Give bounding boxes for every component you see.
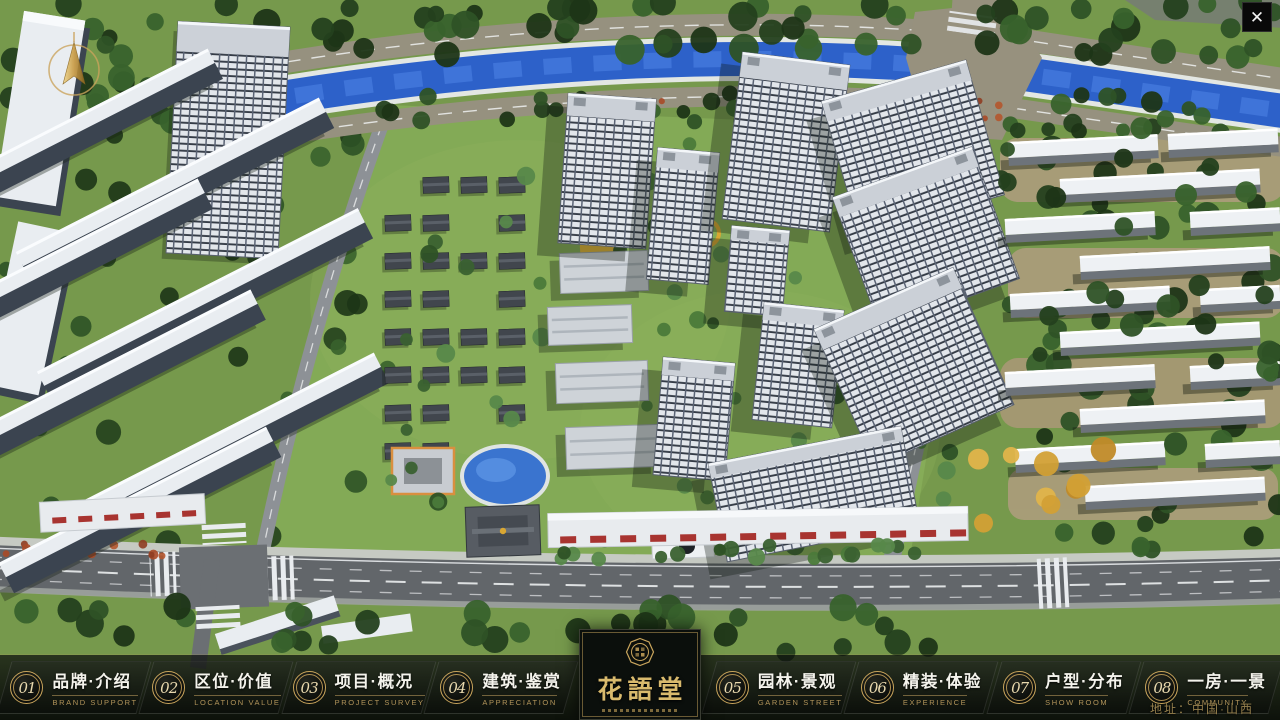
nav-item-brand-intro[interactable]: 01 品牌·介绍BRAND SUPPORT xyxy=(3,659,145,716)
nav-label-en: BRAND SUPPORT xyxy=(52,695,137,707)
site-plan-3d-render[interactable] xyxy=(0,0,1280,720)
nav-label-zh: 区位·价值 xyxy=(194,668,273,692)
nav-label-en: GARDEN STREET xyxy=(758,695,843,707)
nav-item-garden-landscape[interactable]: 05 园林·景观GARDEN STREET xyxy=(708,659,850,716)
project-address: 地址：中国·山西 xyxy=(1150,700,1254,717)
nav-label-zh: 园林·景观 xyxy=(758,668,837,692)
nav-label-en: LOCATION VALUE xyxy=(194,695,280,707)
project-logo[interactable]: 花語堂 xyxy=(579,629,701,720)
nav-item-floorplan-distribution[interactable]: 07 户型·分布SHOW ROOM xyxy=(993,659,1135,716)
nav-label-en: APPRECIATION xyxy=(482,695,557,707)
bottom-navbar: 01 品牌·介绍BRAND SUPPORT 02 区位·价值LOCATION V… xyxy=(0,655,1280,720)
item-number-badge: 05 xyxy=(716,671,749,704)
nav-label-zh: 一房·一景 xyxy=(1187,668,1266,692)
nav-label-en: EXPERIENCE xyxy=(903,695,967,707)
nav-label-zh: 项目·概况 xyxy=(335,668,414,692)
nav-label-zh: 精装·体验 xyxy=(903,668,982,692)
nav-label-en: PROJECT SURVEY xyxy=(335,695,425,707)
logo-subtitle-rule xyxy=(602,709,678,712)
nav-label-zh: 品牌·介绍 xyxy=(52,668,131,692)
nav-label-zh: 户型·分布 xyxy=(1045,668,1124,692)
nav-group-left: 01 品牌·介绍BRAND SUPPORT 02 区位·价值LOCATION V… xyxy=(0,655,575,720)
sales-presentation-screen: ✕ 01 品牌·介绍BRAND SUPPORT 02 区位·价值LOCATION… xyxy=(0,0,1280,720)
nav-label-en: SHOW ROOM xyxy=(1045,695,1108,707)
nav-item-architecture-appreciation[interactable]: 04 建筑·鉴赏APPRECIATION xyxy=(430,659,572,716)
item-number-badge: 04 xyxy=(440,671,473,704)
item-number-badge: 07 xyxy=(1003,671,1036,704)
nav-label-zh: 建筑·鉴赏 xyxy=(482,668,561,692)
nav-item-project-overview[interactable]: 03 项目·概况PROJECT SURVEY xyxy=(288,659,430,716)
nav-item-interior-experience[interactable]: 06 精装·体验EXPERIENCE xyxy=(850,659,992,716)
logo-seal-icon xyxy=(625,637,655,667)
item-number-badge: 03 xyxy=(293,671,326,704)
item-number-badge: 02 xyxy=(152,671,185,704)
nav-item-location-value[interactable]: 02 区位·价值LOCATION VALUE xyxy=(145,659,287,716)
close-button[interactable]: ✕ xyxy=(1242,2,1272,32)
item-number-badge: 01 xyxy=(10,671,43,704)
logo-title: 花語堂 xyxy=(592,670,687,706)
item-number-badge: 06 xyxy=(861,671,894,704)
